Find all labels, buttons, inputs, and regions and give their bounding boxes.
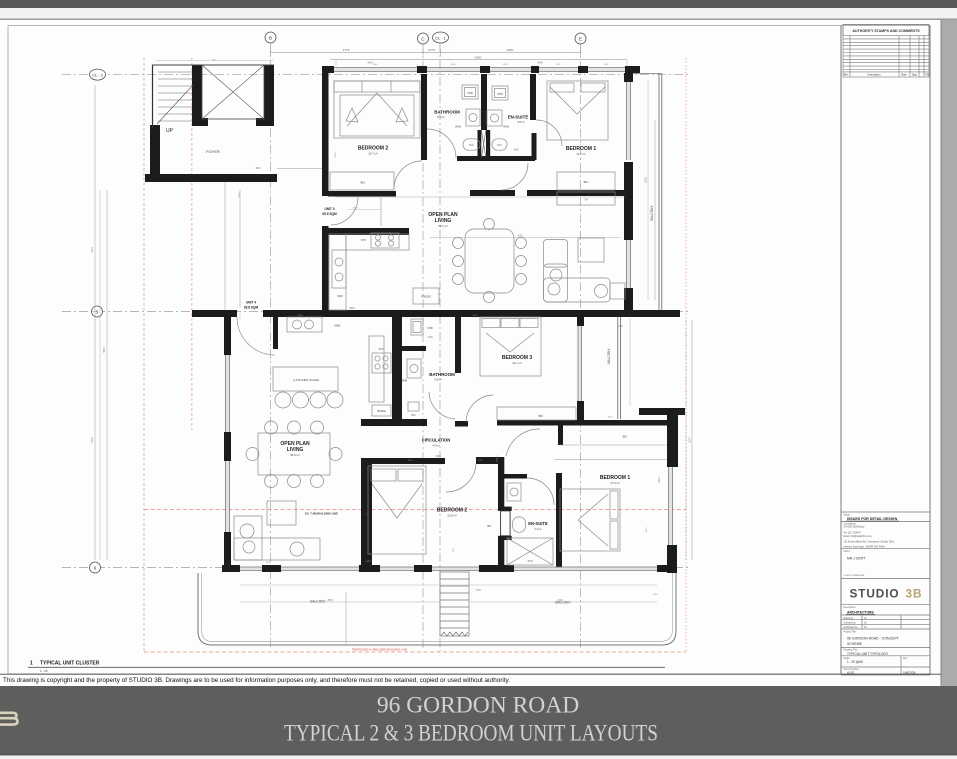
svg-text:SNK: SNK bbox=[337, 294, 343, 298]
svg-text:WHB: WHB bbox=[503, 126, 509, 129]
svg-text:FOYER: FOYER bbox=[206, 149, 220, 154]
svg-text:MR J CRITT: MR J CRITT bbox=[847, 557, 866, 561]
svg-text:3660: 3660 bbox=[473, 315, 479, 317]
svg-text:BATHROOM: BATHROOM bbox=[429, 372, 455, 377]
svg-text:Rev:: Rev: bbox=[903, 657, 908, 660]
svg-text:1 : 25: 1 : 25 bbox=[40, 669, 48, 673]
svg-text:1: 1 bbox=[30, 661, 33, 667]
svg-text:SHR: SHR bbox=[497, 93, 502, 96]
svg-text:4.3 m²: 4.3 m² bbox=[432, 444, 439, 448]
svg-text:93.8 SQM: 93.8 SQM bbox=[244, 306, 259, 310]
svg-text:3B: 3B bbox=[906, 587, 923, 601]
svg-text:4775: 4775 bbox=[343, 48, 350, 52]
svg-text:1490: 1490 bbox=[266, 562, 272, 564]
svg-text:Checked by: Checked by bbox=[844, 622, 857, 624]
svg-text:7794: 7794 bbox=[475, 589, 481, 592]
svg-text:8718: 8718 bbox=[91, 437, 94, 443]
svg-text:5940: 5940 bbox=[349, 307, 355, 310]
svg-text:65.5 SQM: 65.5 SQM bbox=[322, 212, 337, 216]
svg-text:WHB: WHB bbox=[455, 126, 461, 129]
svg-text:TV: TV bbox=[584, 198, 588, 202]
svg-text:C: C bbox=[421, 36, 424, 41]
svg-text:8.1 m²: 8.1 m² bbox=[437, 115, 444, 119]
svg-text:BIC: BIC bbox=[539, 414, 544, 418]
svg-text:Rev: Rev bbox=[844, 73, 849, 77]
svg-text:2715: 2715 bbox=[91, 247, 94, 253]
svg-text:WC: WC bbox=[497, 143, 503, 147]
svg-text:6350: 6350 bbox=[475, 56, 482, 60]
svg-text:3500: 3500 bbox=[327, 599, 333, 602]
svg-text:BALCONY: BALCONY bbox=[607, 348, 611, 364]
svg-text:1400: 1400 bbox=[604, 64, 610, 66]
svg-text:Tel: 011 7034477: Tel: 011 7034477 bbox=[844, 533, 862, 535]
svg-text:JS: JS bbox=[864, 622, 867, 624]
svg-text:1510: 1510 bbox=[556, 64, 562, 66]
svg-text:TV: TV bbox=[364, 513, 368, 517]
svg-text:3010: 3010 bbox=[658, 477, 661, 483]
svg-text:ARCHITECTURE: ARCHITECTURE bbox=[847, 611, 874, 615]
svg-text:WHB: WHB bbox=[401, 380, 407, 383]
svg-text:EN-SUITE: EN-SUITE bbox=[508, 115, 529, 120]
svg-text:1800: 1800 bbox=[353, 208, 359, 210]
svg-text:BALCONY: BALCONY bbox=[650, 205, 654, 221]
svg-text:1100: 1100 bbox=[478, 460, 483, 462]
svg-text:STV: STV bbox=[378, 347, 383, 351]
svg-text:TYPICAL 2 & 3 BEDROOM UNIT LAY: TYPICAL 2 & 3 BEDROOM UNIT LAYOUTS bbox=[284, 721, 658, 746]
svg-text:Description: Description bbox=[868, 73, 882, 77]
svg-text:WC: WC bbox=[411, 414, 415, 417]
svg-text:1400: 1400 bbox=[503, 64, 509, 66]
svg-text:Ashford, South Appl., SHORT RD: Ashford, South Appl., SHORT RD, PIAIA bbox=[844, 546, 886, 549]
svg-text:36.6 m²: 36.6 m² bbox=[290, 453, 300, 457]
svg-text:◎ KITCHEN ISLAND: ◎ KITCHEN ISLAND bbox=[293, 378, 319, 382]
svg-text:Email: info@studio3b.co.za: Email: info@studio3b.co.za bbox=[844, 535, 873, 538]
svg-text:EN-SUITE: EN-SUITE bbox=[528, 521, 548, 526]
svg-text:1400: 1400 bbox=[653, 594, 659, 596]
svg-text:3.5 m²: 3.5 m² bbox=[517, 120, 524, 124]
svg-text:5.9 m²: 5.9 m² bbox=[434, 378, 441, 382]
svg-text:JS: JS bbox=[864, 618, 867, 620]
svg-text:This drawing is copyright and: This drawing is copyright and the proper… bbox=[3, 677, 510, 684]
svg-text:Description:: Description: bbox=[844, 606, 857, 609]
svg-text:3600: 3600 bbox=[255, 167, 261, 170]
svg-text:Authorised by: Authorised by bbox=[844, 626, 859, 629]
svg-text:SHR: SHR bbox=[467, 92, 472, 95]
svg-text:123 Protea Wilrow Rd, Greensto: 123 Protea Wilrow Rd, Greenstone; Sunfai… bbox=[844, 541, 895, 544]
svg-text:1790: 1790 bbox=[427, 336, 433, 339]
svg-text:2690: 2690 bbox=[298, 315, 304, 317]
svg-text:96 GORDON ROAD: 96 GORDON ROAD bbox=[377, 693, 579, 719]
svg-text:1190: 1190 bbox=[365, 560, 371, 563]
svg-text:Client:: Client: bbox=[844, 550, 851, 553]
svg-text:3010: 3010 bbox=[646, 527, 648, 533]
svg-text:1400: 1400 bbox=[513, 149, 519, 152]
svg-text:STV: STV bbox=[361, 238, 366, 242]
svg-text:S: S bbox=[96, 309, 99, 314]
svg-text:CL - 2: CL - 2 bbox=[92, 72, 104, 77]
svg-text:96 GORDON ROAD - CONCEPT: 96 GORDON ROAD - CONCEPT bbox=[847, 637, 900, 641]
svg-text:FRIDGE: FRIDGE bbox=[377, 411, 386, 413]
svg-text:5276: 5276 bbox=[645, 177, 648, 183]
svg-text:TYPICAL UNIT CLUSTER: TYPICAL UNIT CLUSTER bbox=[40, 661, 100, 667]
svg-text:10.7 m²: 10.7 m² bbox=[368, 152, 378, 156]
svg-text:STUDIO: STUDIO bbox=[850, 587, 900, 601]
svg-text:12.8 m²: 12.8 m² bbox=[447, 514, 457, 518]
svg-text:1 : 25 @A0: 1 : 25 @A0 bbox=[847, 660, 863, 664]
svg-text:BIC: BIC bbox=[361, 181, 366, 185]
svg-text:1400: 1400 bbox=[617, 325, 623, 328]
svg-text:SHR: SHR bbox=[427, 327, 432, 330]
svg-text:FRIDGE: FRIDGE bbox=[421, 295, 431, 299]
svg-text:EX. 7.5M BUILDING LINE: EX. 7.5M BUILDING LINE bbox=[305, 512, 338, 516]
svg-text:1400: 1400 bbox=[608, 417, 614, 419]
svg-text:UP: UP bbox=[166, 128, 174, 134]
svg-text:4130: 4130 bbox=[517, 235, 523, 238]
svg-text:1540: 1540 bbox=[239, 192, 241, 198]
svg-text:E: E bbox=[579, 36, 582, 41]
svg-text:Project Title:: Project Title: bbox=[844, 631, 857, 634]
svg-text:3560: 3560 bbox=[373, 64, 379, 66]
svg-text:BC: BC bbox=[488, 524, 492, 528]
svg-text:Sign: Sign bbox=[912, 73, 918, 77]
svg-text:CL - 1: CL - 1 bbox=[435, 35, 447, 40]
svg-text:5525: 5525 bbox=[103, 347, 106, 353]
svg-text:STUDIO 3B (Pty)Ltd: STUDIO 3B (Pty)Ltd bbox=[844, 526, 866, 529]
svg-text:3005: 3005 bbox=[527, 560, 533, 563]
svg-text:2170: 2170 bbox=[428, 48, 435, 52]
svg-text:4998: 4998 bbox=[537, 62, 543, 65]
svg-text:B: B bbox=[269, 35, 272, 40]
svg-text:UNIT 3: UNIT 3 bbox=[324, 207, 334, 211]
svg-text:75.1 m²: 75.1 m² bbox=[438, 224, 448, 228]
svg-text:UNIT 4: UNIT 4 bbox=[246, 301, 256, 305]
svg-text:CIRCULATION: CIRCULATION bbox=[422, 438, 451, 443]
svg-text:17.6 m²: 17.6 m² bbox=[610, 481, 620, 485]
svg-text:4.4 m²: 4.4 m² bbox=[534, 527, 541, 531]
svg-text:BALCONY: BALCONY bbox=[310, 600, 326, 604]
svg-text:ISSUES FOR DETAIL DESIGN: ISSUES FOR DETAIL DESIGN bbox=[847, 517, 898, 521]
svg-text:Date: Date bbox=[901, 73, 907, 77]
svg-text:T/B: T/B bbox=[925, 73, 929, 77]
svg-text:WC: WC bbox=[469, 143, 475, 147]
svg-text:1060: 1060 bbox=[451, 64, 457, 66]
svg-text:3000: 3000 bbox=[335, 152, 337, 158]
svg-text:BIC: BIC bbox=[623, 435, 628, 439]
svg-text:JS: JS bbox=[864, 627, 867, 629]
svg-text:PROPOSED 3m RELAXED BUILDING L: PROPOSED 3m RELAXED BUILDING LINE bbox=[352, 648, 407, 652]
svg-text:CLIENT SIGNATURE: CLIENT SIGNATURE bbox=[844, 574, 865, 577]
svg-text:12.1 m²: 12.1 m² bbox=[512, 361, 522, 365]
svg-text:TYPICAL UNIT TYPOLOGY: TYPICAL UNIT TYPOLOGY bbox=[847, 652, 889, 656]
svg-text:BATHROOM: BATHROOM bbox=[434, 110, 460, 115]
svg-text:11.7 m²: 11.7 m² bbox=[576, 152, 585, 156]
svg-text:BALCONY: BALCONY bbox=[555, 601, 571, 605]
svg-text:1480: 1480 bbox=[435, 455, 441, 458]
svg-text:SCHEME: SCHEME bbox=[847, 642, 863, 646]
svg-text:SINK: SINK bbox=[334, 324, 341, 328]
svg-text:Drawn by: Drawn by bbox=[844, 617, 855, 620]
svg-text:5177: 5177 bbox=[689, 437, 692, 443]
svg-text:1400: 1400 bbox=[408, 460, 414, 462]
svg-text:BIC: BIC bbox=[584, 180, 589, 184]
svg-text:AUTHORITY STAMPS AND COMMENTS: AUTHORITY STAMPS AND COMMENTS bbox=[852, 29, 920, 33]
svg-text:4060: 4060 bbox=[507, 48, 514, 52]
svg-text:Consultants:: Consultants: bbox=[844, 522, 857, 525]
